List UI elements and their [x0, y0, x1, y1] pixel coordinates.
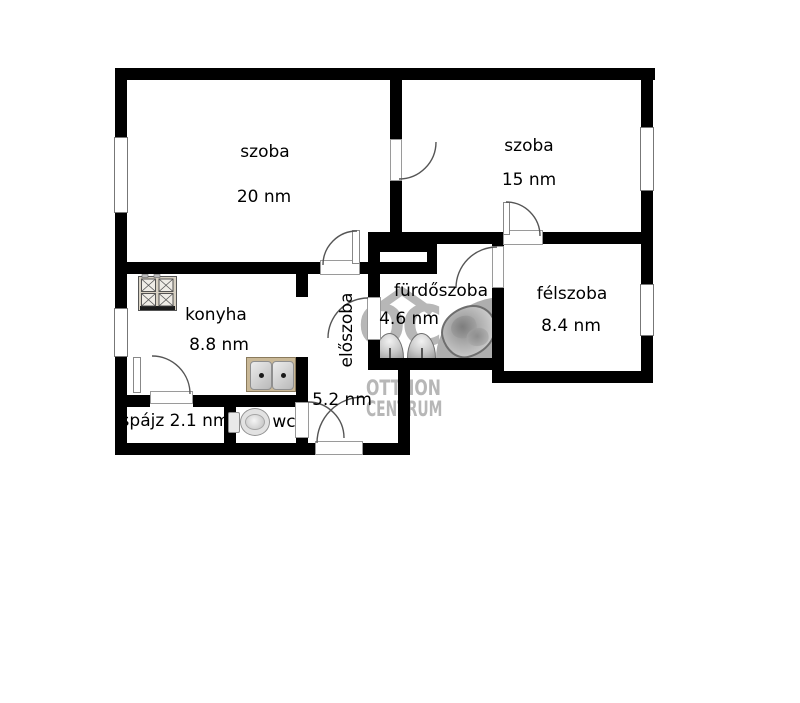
floor-plan: OC OTTHON CENTRUM: [0, 0, 800, 703]
room-label-furdoszoba: fürdőszoba: [371, 281, 511, 301]
wall-mid-horizontal-right: [543, 232, 653, 244]
room-label-szoba15: szoba: [459, 136, 599, 156]
room-area-szoba20: 20 nm: [194, 187, 334, 207]
window-szoba15: [640, 127, 654, 191]
room-area-felszoba: 8.4 nm: [501, 316, 641, 336]
wall-bath-bottom: [368, 358, 504, 370]
sink-basin-left: [250, 361, 272, 390]
door-threshold-spajz: [150, 391, 193, 404]
door-threshold-entrance: [315, 441, 363, 455]
wall-room-divider-upper: [390, 80, 402, 139]
room-label-wc: wc: [214, 412, 354, 432]
door-leaf-szoba20: [352, 230, 360, 264]
wall-outer-top: [115, 68, 655, 80]
kitchen-sink-icon: [246, 357, 296, 392]
room-area-eloszoba: 5.2 nm: [272, 390, 412, 410]
wall-kitchen-bottom-left: [115, 395, 150, 407]
window-konyha: [114, 308, 128, 357]
wall-felszoba-bottom: [492, 371, 653, 383]
room-area-szoba15: 15 nm: [459, 170, 599, 190]
window-felszoba: [640, 284, 654, 336]
door-arc-divider: [399, 142, 436, 179]
door-leaf-spajz: [133, 357, 141, 393]
room-label-konyha: konyha: [146, 305, 286, 325]
room-label-felszoba: félszoba: [502, 284, 642, 304]
wall-bottom-left: [115, 443, 315, 455]
room-label-eloszoba: előszoba: [337, 270, 357, 390]
room-label-szoba20: szoba: [195, 142, 335, 162]
room-area-konyha: 8.8 nm: [149, 335, 289, 355]
wall-szoba20-bottom-left: [115, 262, 320, 274]
wall-kitchen-right-upper: [296, 262, 308, 297]
door-threshold-szoba-divider: [390, 139, 402, 181]
vent-shaft-cavity: [380, 252, 427, 262]
wall-szoba20-bottom-right: [360, 262, 380, 274]
window-szoba20: [114, 137, 128, 213]
sink-basin-right: [272, 361, 294, 390]
door-leaf-szoba15: [503, 202, 510, 235]
door-arc-spajz: [152, 356, 190, 394]
room-area-furdoszoba: 4.6 nm: [339, 309, 479, 329]
